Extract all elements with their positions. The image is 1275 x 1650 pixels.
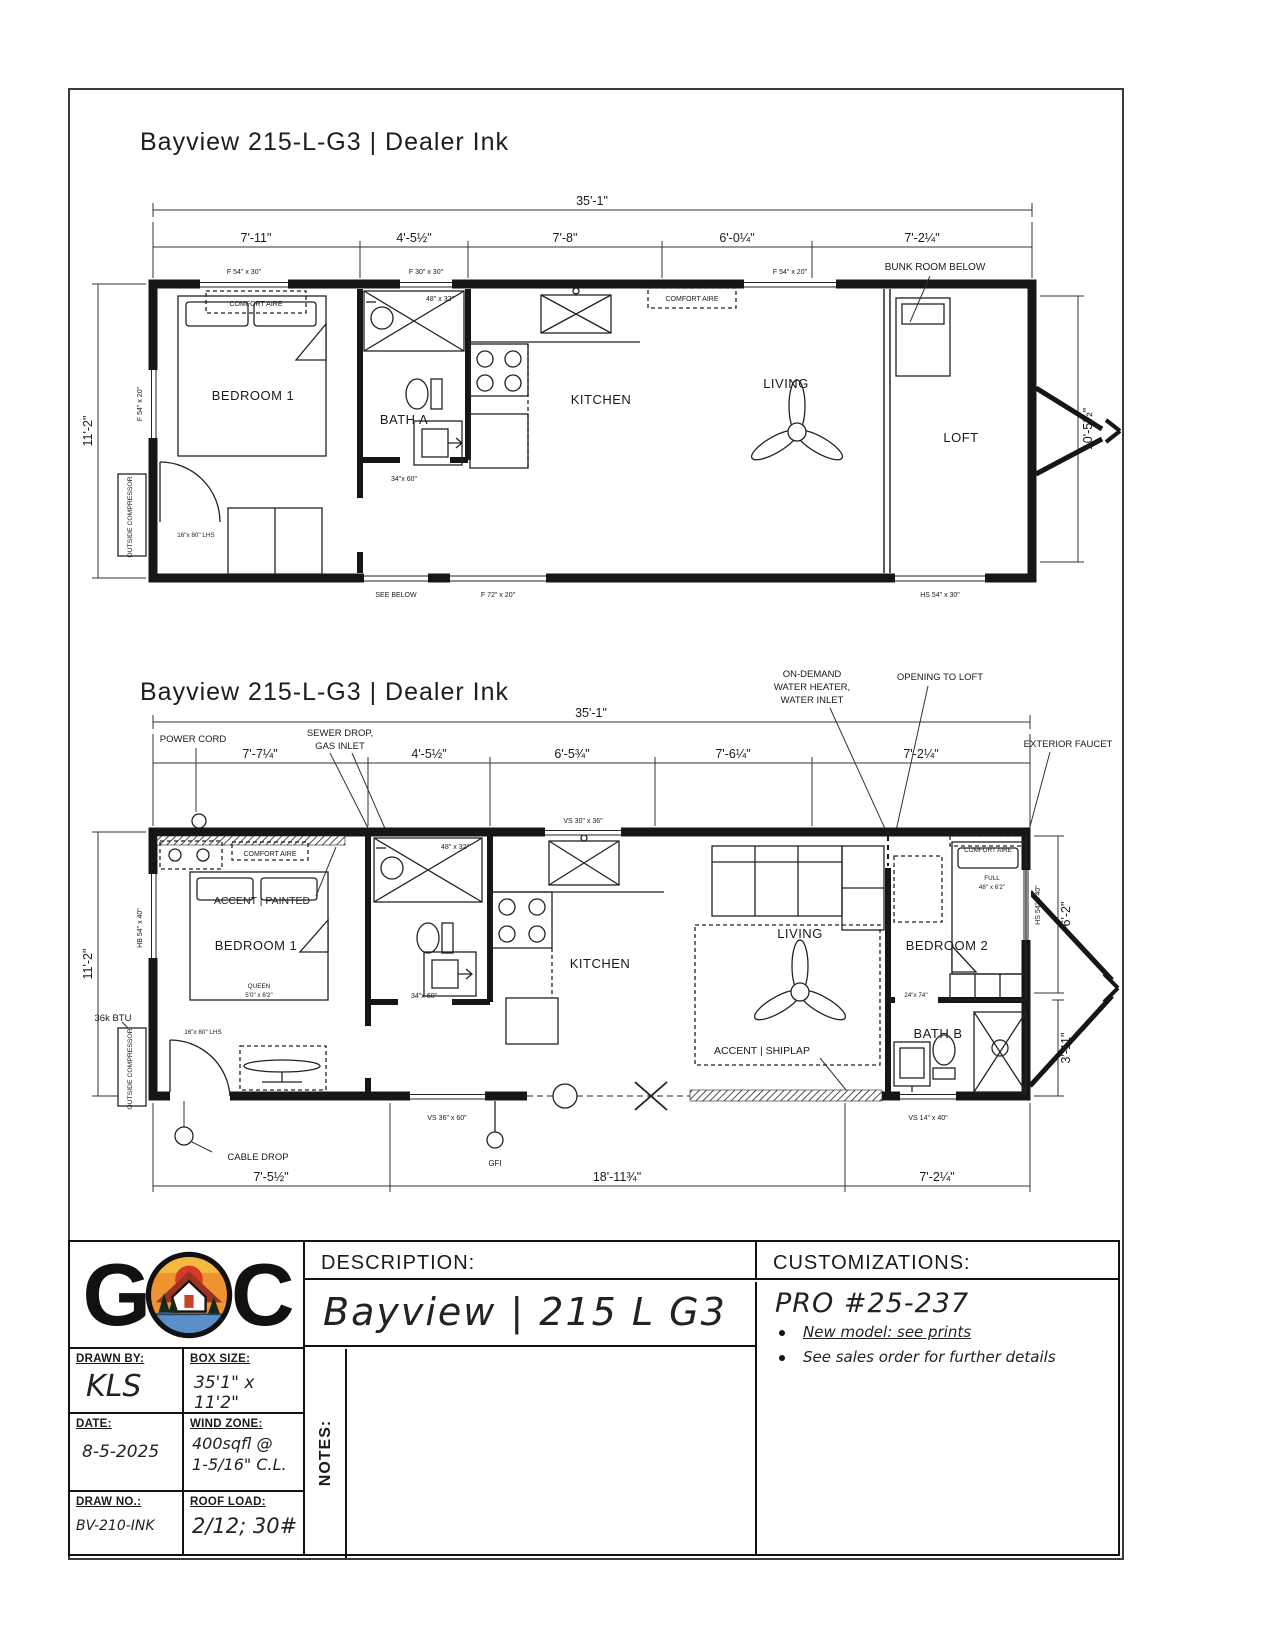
plan2-accent-painted-label: ACCENT | PAINTED (214, 895, 311, 907)
pro-number: PRO #25-237 (757, 1282, 1120, 1319)
plan2-callout-sewer-1: SEWER DROP, (307, 728, 373, 739)
customization-item-2-text: See sales order for further details (803, 1348, 1056, 1366)
plan1-dim-seg1: 7'-11" (241, 231, 272, 245)
wind-zone-label: WIND ZONE: (184, 1414, 303, 1430)
customization-item-1: New model: see prints (757, 1323, 1120, 1341)
description-header-cell: DESCRIPTION: (305, 1242, 755, 1280)
plan2-callout-sewer-2: GAS INLET (315, 741, 365, 752)
drawn-by-value: KLS (70, 1365, 182, 1404)
plan1-dim-seg5: 7'-2¼" (904, 231, 939, 245)
wind-zone-value-line1: 400sqfl @ (184, 1430, 303, 1453)
plan2-dim-seg3: 6'-5¾" (554, 747, 589, 761)
plan2-callout-ondemand-2: WATER HEATER, (774, 682, 850, 693)
plan2-comfort-aire2-label: COMFORT AIRE (964, 847, 1012, 854)
plan2-window-label-hb5440: HB 54" x 40" (137, 908, 144, 948)
plan2-window-label-vs3036: VS 30" x 36" (563, 818, 603, 825)
plan2-accent-painted-band (157, 836, 345, 845)
plan1-window-label-f5430: F 54" x 30" (227, 269, 262, 276)
plan1-window-label-f3030: F 30" x 30" (409, 269, 444, 276)
customization-item-1-text: New model: see prints (803, 1323, 971, 1341)
plan2-dim-left: 11'-2" (81, 949, 95, 980)
plan2-full-size: 48" x 6'2" (979, 884, 1005, 891)
customizations-list: New model: see prints See sales order fo… (757, 1323, 1120, 1366)
plan2-window-label-vs1440: VS 14" x 40" (908, 1115, 948, 1122)
plan2-gfi-symbol (487, 1101, 503, 1148)
plan2-door-size-bedroom1: 16"x 80" LHS (184, 1029, 221, 1036)
plan2-queen-label: QUEEN (248, 983, 271, 990)
draw-no-cell: DRAW NO.: BV-210-INK (70, 1492, 184, 1554)
plan2-queen-size: 5'0" x 6'2" (245, 992, 273, 999)
drawn-by-label: DRAWN BY: (70, 1349, 182, 1365)
plan2-room-bath-b: BATH B (914, 1026, 963, 1041)
logo-letter-g: G (82, 1251, 146, 1339)
wind-zone-cell: WIND ZONE: 400sqfl @ 1-5/16" C.L. (184, 1414, 305, 1492)
plan2-dim-bottom2: 18'-11¾" (593, 1170, 641, 1184)
plan1-bunk-room-label: BUNK ROOM BELOW (885, 262, 986, 273)
plan2-callout-ondemand-3: WATER INLET (781, 695, 844, 706)
customization-item-2: See sales order for further details (757, 1348, 1120, 1366)
plan2-window-label-vs3660: VS 36" x 60" (427, 1115, 467, 1122)
plan1-room-bath-a: BATH A (380, 412, 428, 427)
plan2-full-label: FULL (984, 875, 1000, 882)
plan1-window-label-hs5430: HS 54" x 30" (920, 592, 960, 599)
box-size-value: 35'1" x 11'2" (184, 1365, 303, 1413)
date-cell: DATE: 8-5-2025 (70, 1414, 184, 1492)
plan2-dim-right-lower: 3'-11" (1059, 1033, 1073, 1064)
plan1-dim-right: 10'-5½" (1081, 408, 1095, 450)
plan2-shower-a-size: 48" x 32" (441, 844, 469, 851)
plan2-btu-label: 36k BTU (95, 1013, 132, 1024)
plan2-wall-outlet-circle (553, 1084, 577, 1108)
plan2-accent-shiplap-band (690, 1090, 882, 1101)
plan2-dim-bottom3: 7'-2¼" (919, 1170, 954, 1184)
plan2-comfort-aire-label: COMFORT AIRE (243, 851, 296, 858)
plan1-window-label-f7220: F 72" x 20" (481, 592, 516, 599)
plan2-hitch (1030, 892, 1118, 1086)
plan1-dim-seg4: 6'-0¼" (719, 231, 754, 245)
plan2-callout-opening: OPENING TO LOFT (897, 672, 983, 683)
plan1-exterior-walls (153, 284, 1032, 578)
roof-load-value: 2/12; 30# (184, 1508, 303, 1538)
plan1-dim-overall: 35'-1" (576, 194, 608, 208)
plan2-room-bedroom1: BEDROOM 1 (215, 938, 298, 953)
drawn-by-cell: DRAWN BY: KLS (70, 1349, 184, 1414)
date-label: DATE: (70, 1414, 182, 1430)
notes-cell: NOTES: (305, 1349, 347, 1558)
plan2-callout-ondemand-1: ON-DEMAND (783, 669, 842, 680)
description-value-cell: Bayview | 215 L G3 (305, 1282, 755, 1347)
plan1-window-label-left: F 54" x 20" (137, 386, 144, 421)
plan2-dim-seg5: 7'-2¼" (903, 747, 938, 761)
plan2-accent-shiplap-label: ACCENT | SHIPLAP (714, 1045, 810, 1057)
goc-logo-icon (143, 1249, 235, 1341)
customizations-label: CUSTOMIZATIONS: (757, 1242, 1120, 1275)
roof-load-cell: ROOF LOAD: 2/12; 30# (184, 1492, 305, 1554)
roof-load-label: ROOF LOAD: (184, 1492, 303, 1508)
notes-label: NOTES: (317, 1420, 335, 1486)
description-value: Bayview | 215 L G3 (305, 1282, 755, 1334)
wind-zone-value-line2: 1-5/16" C.L. (184, 1453, 303, 1474)
plan2-room-bedroom2: BEDROOM 2 (906, 938, 989, 953)
date-value: 8-5-2025 (70, 1430, 182, 1462)
logo-cell: G C (70, 1242, 305, 1349)
plan2-gfi-label: GFI (488, 1159, 501, 1168)
plan2-dim-right-upper: 6'-2" (1059, 902, 1073, 927)
plan2-dim-overall: 35'-1" (575, 706, 607, 720)
plan2-window-label-hs5440: HS 54" x 40" (1035, 885, 1042, 925)
plan2-drawing: ON-DEMAND WATER HEATER, WATER INLET OPEN… (68, 640, 1130, 1240)
plan2-room-kitchen: KITCHEN (570, 956, 631, 971)
plan1-dim-seg3: 7'-8" (553, 231, 578, 245)
box-size-cell: BOX SIZE: 35'1" x 11'2" (184, 1349, 305, 1414)
plan2-dim-bottom1: 7'-5½" (253, 1170, 288, 1184)
draw-no-label: DRAW NO.: (70, 1492, 182, 1508)
plan1-comfort-aire-living-label: COMFORT AIRE (665, 296, 718, 303)
draw-no-value: BV-210-INK (70, 1508, 182, 1534)
plan1-door-size: 16"x 80" LHS (177, 532, 214, 539)
box-size-label: BOX SIZE: (184, 1349, 303, 1365)
plan1-bath-door-size: 34"x 60" (391, 476, 418, 483)
plan2-dim-seg4: 7'-6¼" (715, 747, 750, 761)
plan1-room-bedroom1: BEDROOM 1 (212, 388, 295, 403)
plan1-room-living: LIVING (763, 376, 809, 391)
customizations-header-cell: CUSTOMIZATIONS: (755, 1242, 1120, 1280)
plan2-cable-drop-symbol (175, 1101, 212, 1152)
plan2-cable-drop-label: CABLE DROP (227, 1152, 288, 1163)
plan2-callout-ext-faucet: EXTERIOR FAUCET (1024, 739, 1113, 750)
description-label: DESCRIPTION: (305, 1242, 755, 1275)
plan2-bath-b-door-size: 24"x 74" (904, 992, 927, 999)
plan2-bath-a-door-size: 34"x 60" (411, 993, 438, 1000)
plan1-drawing: 35'-1" 7'-11" 4'-5½" 7'-8" 6'-0¼" 7'-2¼"… (68, 180, 1130, 610)
title-block: G C DES (68, 1240, 1120, 1556)
plan2-callout-power-cord: POWER CORD (160, 734, 227, 745)
plan1-see-below: SEE BELOW (375, 592, 417, 599)
plan1-dim-left: 11'-2" (81, 416, 95, 447)
plan2-dim-seg2: 4'-5½" (411, 747, 446, 761)
plan1-title: Bayview 215-L-G3 | Dealer Ink (140, 128, 509, 157)
plan1-room-kitchen: KITCHEN (571, 392, 632, 407)
plan2-dim-seg1: 7'-7¼" (242, 747, 277, 761)
plan2-power-cord-symbol (192, 814, 206, 828)
plan1-room-loft: LOFT (943, 430, 978, 445)
plan1-shower-size: 48" x 32" (426, 296, 454, 303)
plan1-comfort-aire-label: COMFORT AIRE (229, 301, 282, 308)
plan1-window-label-f5420: F 54" x 20" (773, 269, 808, 276)
plan1-compressor-label: OUTSIDE COMPRESSOR (127, 476, 134, 557)
logo-letter-c: C (231, 1251, 291, 1339)
customizations-body-cell: PRO #25-237 New model: see prints See sa… (755, 1282, 1120, 1554)
plan2-compressor-label: OUTSIDE COMPRESSOR (127, 1028, 134, 1109)
plan2-room-living: LIVING (777, 926, 823, 941)
plan1-dim-seg2: 4'-5½" (396, 231, 431, 245)
